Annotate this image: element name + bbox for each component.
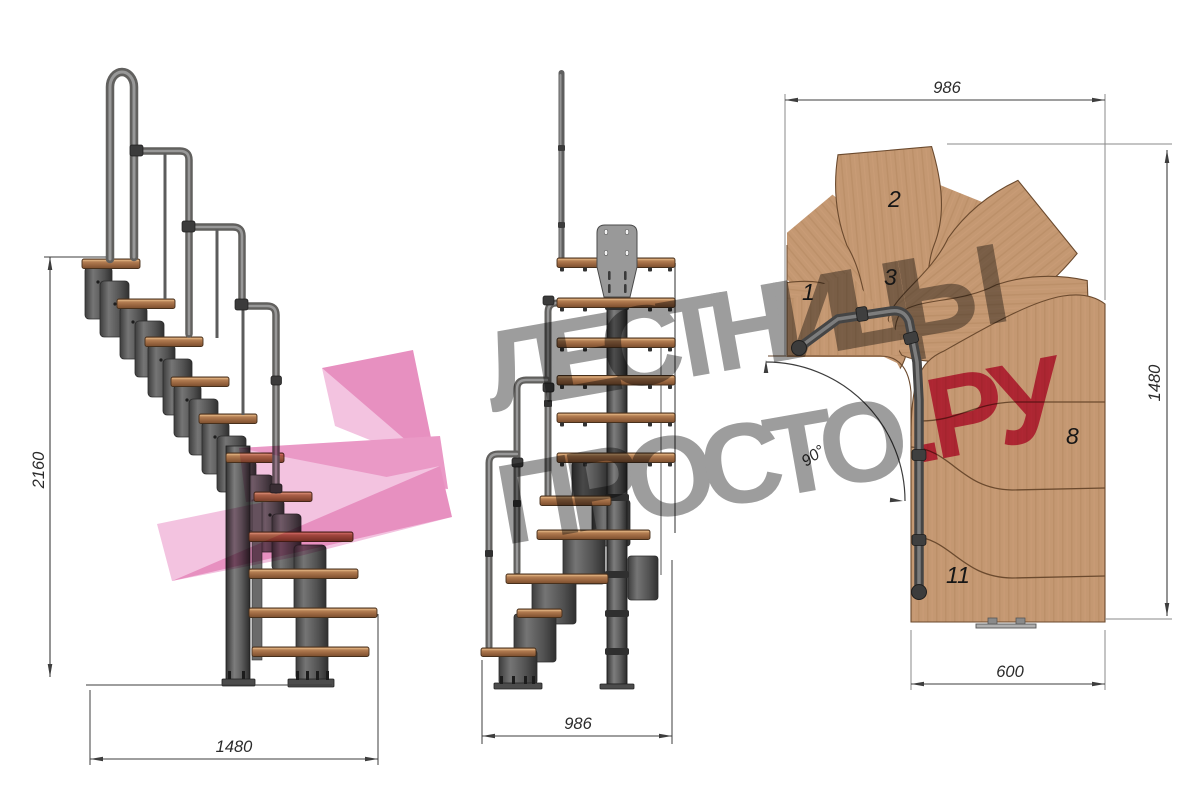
- svg-text:1480: 1480: [1146, 364, 1164, 402]
- svg-text:2: 2: [887, 186, 901, 212]
- svg-text:1: 1: [802, 279, 815, 305]
- svg-text:3: 3: [884, 264, 897, 290]
- svg-text:2160: 2160: [30, 451, 48, 490]
- svg-text:8: 8: [1066, 423, 1079, 449]
- svg-text:600: 600: [996, 663, 1024, 681]
- svg-text:986: 986: [933, 79, 961, 97]
- svg-text:986: 986: [564, 715, 592, 733]
- svg-text:11: 11: [946, 562, 970, 588]
- svg-text:1480: 1480: [216, 738, 254, 756]
